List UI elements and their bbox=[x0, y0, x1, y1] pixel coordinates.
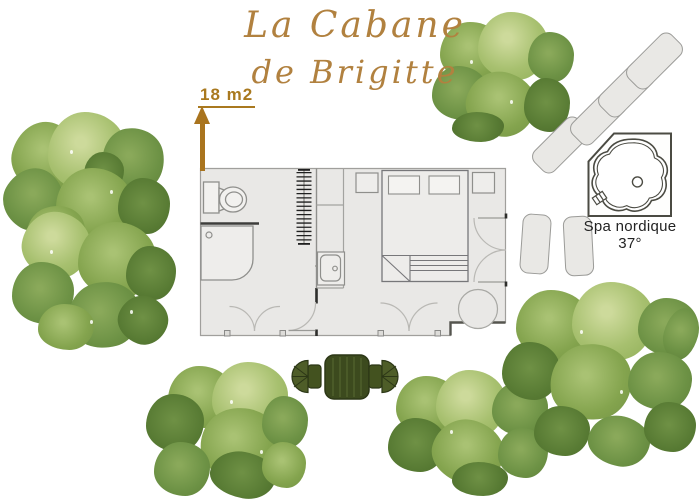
tree-blob bbox=[628, 352, 692, 410]
spa-label: Spa nordique 37° bbox=[580, 219, 680, 252]
tree-blob bbox=[452, 112, 504, 142]
tree-blob bbox=[644, 402, 696, 452]
tree-blob bbox=[584, 411, 654, 471]
pillow bbox=[429, 176, 460, 194]
tree-blob bbox=[262, 442, 306, 488]
nightstand-left bbox=[356, 173, 378, 193]
outdoor-chair-left bbox=[292, 361, 321, 393]
tree-blob bbox=[126, 246, 176, 300]
tree-blob bbox=[534, 406, 590, 456]
nightstand-right bbox=[473, 173, 495, 194]
lounge-chair bbox=[519, 213, 552, 275]
foliage-sparkle bbox=[50, 250, 53, 254]
foliage-sparkle bbox=[510, 100, 513, 104]
pillow bbox=[389, 176, 420, 194]
foliage-sparkle bbox=[230, 400, 233, 404]
outdoor-chair-right bbox=[369, 361, 398, 393]
sink bbox=[315, 252, 345, 285]
spa-name: Spa nordique bbox=[580, 219, 680, 235]
foliage-sparkle bbox=[450, 430, 453, 434]
area-label: 18 m2 bbox=[198, 85, 255, 108]
foliage-sparkle bbox=[90, 320, 93, 324]
up-arrow-icon bbox=[194, 106, 210, 124]
double-bed bbox=[382, 171, 468, 282]
tree-blob bbox=[38, 304, 94, 350]
round-table bbox=[459, 290, 498, 329]
outdoor-dining-set bbox=[282, 348, 408, 404]
foliage-sparkle bbox=[580, 330, 583, 334]
foliage-sparkle bbox=[110, 190, 113, 194]
foliage-sparkle bbox=[70, 150, 73, 154]
nordic-spa bbox=[587, 132, 673, 218]
foliage-sparkle bbox=[620, 390, 623, 394]
tree-blob bbox=[452, 462, 508, 496]
outdoor-table bbox=[325, 355, 369, 399]
title-line-2: de Brigitte bbox=[235, 50, 475, 94]
foliage-sparkle bbox=[260, 450, 263, 454]
site-plan-illustration: La Cabane de Brigitte 18 m2 Spa nordique… bbox=[0, 0, 700, 500]
spa-temperature: 37° bbox=[580, 236, 680, 252]
page-title: La Cabane de Brigitte bbox=[235, 2, 475, 94]
tree-blob bbox=[154, 442, 210, 496]
up-arrow-shaft bbox=[200, 123, 205, 171]
tree-blob bbox=[528, 32, 574, 82]
cabin-floor-plan bbox=[196, 164, 512, 340]
foliage-sparkle bbox=[130, 310, 133, 314]
title-line-1: La Cabane bbox=[235, 2, 475, 50]
